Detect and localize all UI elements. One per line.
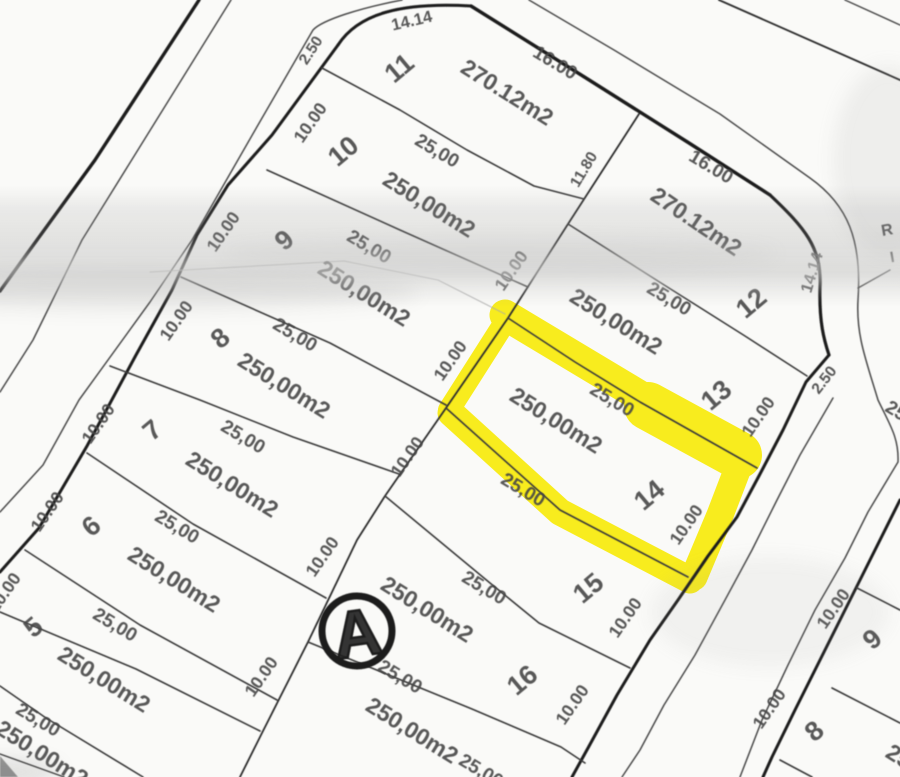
svg-text:A: A: [328, 593, 386, 673]
